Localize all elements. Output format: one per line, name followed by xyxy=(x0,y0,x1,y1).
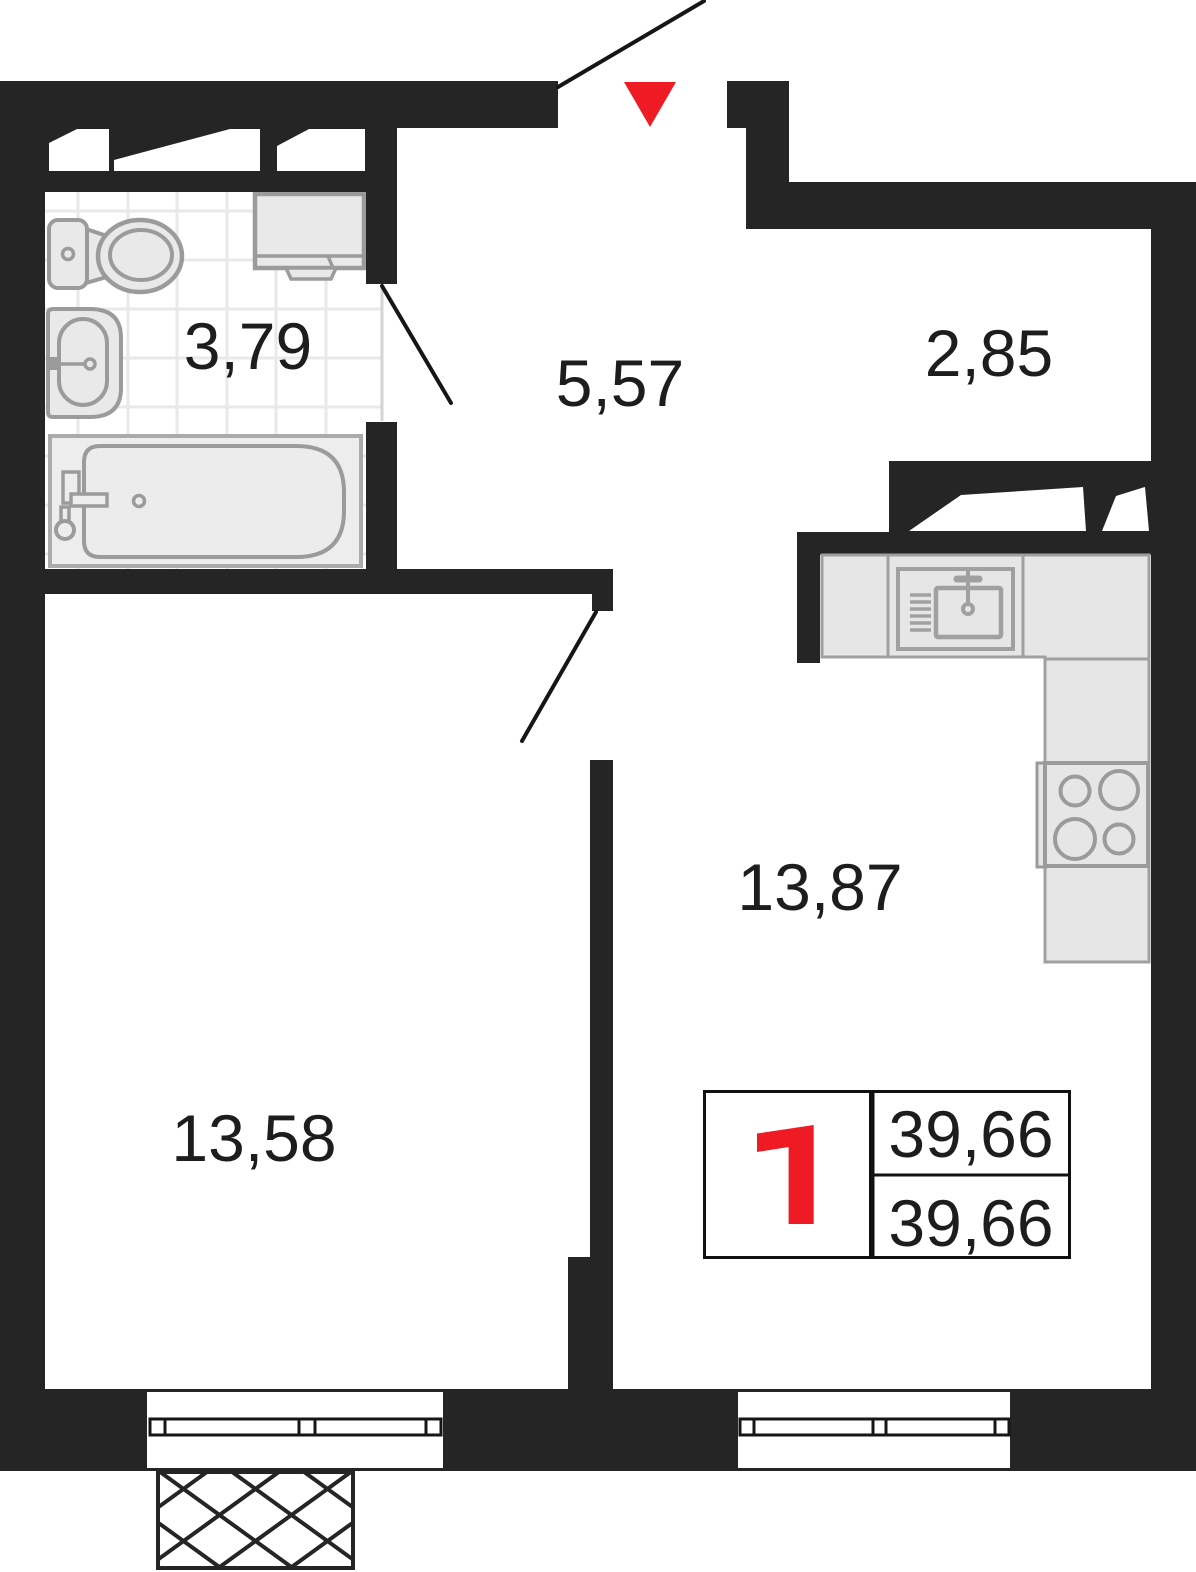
svg-text:13,87: 13,87 xyxy=(737,850,902,924)
svg-text:13,58: 13,58 xyxy=(171,1101,336,1175)
svg-text:2,85: 2,85 xyxy=(925,316,1053,390)
svg-text:3,79: 3,79 xyxy=(184,309,312,383)
svg-text:5,57: 5,57 xyxy=(556,346,684,420)
svg-text:39,66: 39,66 xyxy=(888,1097,1053,1171)
svg-text:39,66: 39,66 xyxy=(888,1186,1053,1260)
